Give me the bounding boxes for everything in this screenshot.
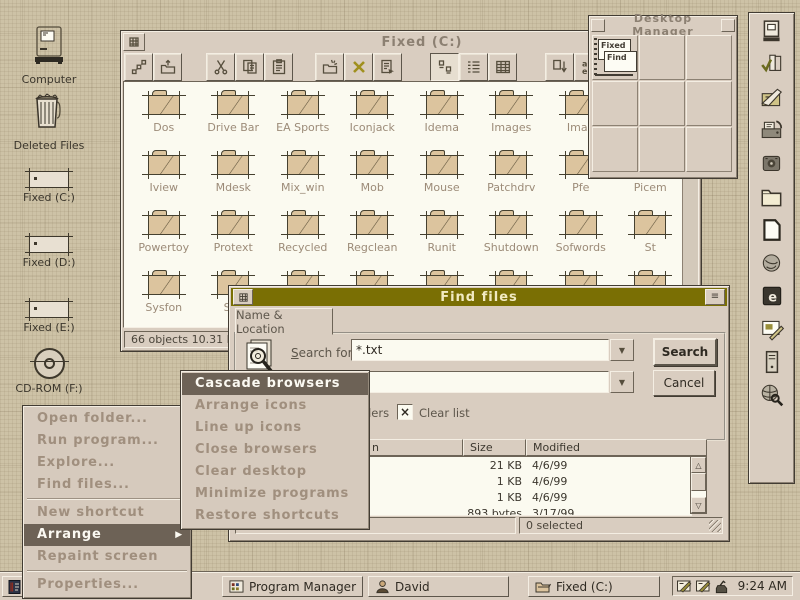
cancel-button-label: Cancel <box>664 376 705 390</box>
submenu-item-line-up-icons[interactable]: Line up icons <box>182 417 368 439</box>
properties-icon[interactable] <box>373 53 402 81</box>
look-in-input[interactable] <box>351 371 609 393</box>
search-button-label: Search <box>662 345 708 359</box>
folder-label: Drive Bar <box>199 121 269 134</box>
folder-label: Mix_win <box>268 181 338 194</box>
results-scrollbar[interactable]: △ ▽ <box>690 456 707 514</box>
tray-note-icon[interactable] <box>676 578 692 594</box>
folder-item[interactable]: Dos <box>129 88 199 148</box>
folder-label: Protext <box>199 241 269 254</box>
dropdown-arrow-icon: ▼ <box>619 346 625 355</box>
folder-label: Shutdown <box>477 241 547 254</box>
scrollbar-thumb[interactable] <box>691 473 706 491</box>
submenu-item-close-browsers[interactable]: Close browsers <box>182 439 368 461</box>
submenu-item-cascade-browsers[interactable]: Cascade browsers <box>182 373 368 395</box>
folder-label: Mouse <box>407 181 477 194</box>
desktop-icon-fixed-e[interactable]: Fixed (E:) <box>11 297 87 334</box>
folder-item[interactable]: Recycled <box>268 208 338 268</box>
folder-item[interactable]: Mob <box>338 148 408 208</box>
folder-icon <box>631 210 669 237</box>
folder-label: Regclean <box>338 241 408 254</box>
sidebar-shortcut-recorder[interactable] <box>758 151 786 177</box>
search-for-dropdown-button[interactable]: ▼ <box>610 339 634 361</box>
folder-label: Powertoy <box>129 241 199 254</box>
menu-item-new-shortcut[interactable]: New shortcut <box>24 502 190 524</box>
sidebar-shortcut-globe-sculpture[interactable] <box>758 250 786 276</box>
computer-icon <box>759 19 785 45</box>
folder-icon <box>353 150 391 177</box>
folder-icon <box>214 90 252 117</box>
column-header-fragment: n <box>372 441 379 454</box>
window-grid-icon <box>238 292 249 303</box>
folder-row: Powertoy Protext Recycled Regclean Runit… <box>129 208 698 268</box>
tab-label: Name & Location <box>236 308 332 336</box>
desktop-icon-label: Computer <box>11 73 87 86</box>
desktop-icon-label: Fixed (E:) <box>11 321 87 334</box>
trash-icon <box>27 92 71 132</box>
desktop-page-cell[interactable] <box>639 35 685 80</box>
folder-icon <box>492 210 530 237</box>
result-size: 21 KB <box>460 459 522 472</box>
folder-item[interactable]: Mix_win <box>268 148 338 208</box>
blank-page-icon <box>759 217 785 243</box>
lines-icon: ≡ <box>711 292 719 302</box>
sidebar-shortcut-e-floppy[interactable]: e <box>758 283 786 309</box>
desktop-page-cell[interactable]: Fixed Find <box>592 35 638 80</box>
clock[interactable]: 9:24 AM <box>738 579 789 593</box>
sort-by-type-icon[interactable] <box>545 53 574 81</box>
folder-icon <box>284 90 322 117</box>
desktop-icon-deleted-files[interactable]: Deleted Files <box>11 92 87 152</box>
menu-item-open-folder[interactable]: Open folder... <box>24 408 190 430</box>
drive-icon <box>29 301 69 318</box>
folder-item[interactable]: Regclean <box>338 208 408 268</box>
submenu-item-arrange-icons[interactable]: Arrange icons <box>182 395 368 417</box>
paste-icon[interactable] <box>264 53 293 81</box>
folder-label: Recycled <box>268 241 338 254</box>
checkmark-x-icon: × <box>400 406 410 418</box>
folder-label: Mob <box>338 181 408 194</box>
folder-label: Picem <box>616 181 686 194</box>
paint-picture-icon <box>759 316 785 342</box>
folder-label: Pfe <box>546 181 616 194</box>
accesskey: S <box>291 346 299 360</box>
task-button-fixed-c[interactable]: Fixed (C:) <box>528 576 660 597</box>
menu-item-repaint-screen[interactable]: Repaint screen <box>24 546 190 568</box>
folder-icon <box>145 270 183 297</box>
result-size: 893 bytes <box>460 507 522 517</box>
folder-label: Iview <box>129 181 199 194</box>
result-modified: 3/17/99 <box>522 507 574 517</box>
task-button-label: Fixed (C:) <box>556 580 613 594</box>
selected-text: 0 selected <box>526 519 583 532</box>
selected-status: 0 selected <box>519 517 723 534</box>
folder-label: Dos <box>129 121 199 134</box>
folder-icon <box>145 210 183 237</box>
menu-separator <box>27 570 187 572</box>
desktop-manager-window: Desktop Manager Fixed Find <box>588 15 738 179</box>
notepad-pencil-icon <box>759 85 785 111</box>
triangle-up-icon: △ <box>695 461 701 470</box>
desktop-icon-fixed-c[interactable]: Fixed (C:) <box>11 167 87 204</box>
shortcut-sidebar: e <box>748 12 795 484</box>
tower-pc-icon <box>759 349 785 375</box>
desktop-context-menu: Open folder... Run program... Explore...… <box>22 405 192 599</box>
folder-label: Sofwords <box>546 241 616 254</box>
menu-item-find-files[interactable]: Find files... <box>24 474 190 496</box>
menu-item-label: Arrange <box>37 527 102 542</box>
folder-item[interactable]: Protext <box>199 208 269 268</box>
submenu-item-restore-shortcuts[interactable]: Restore shortcuts <box>182 505 368 527</box>
desktop-page-cell[interactable] <box>639 127 685 172</box>
folder-icon <box>759 184 785 210</box>
folder-item[interactable]: Idema <box>407 88 477 148</box>
fax-icon <box>759 118 785 144</box>
submenu-item-clear-desktop[interactable]: Clear desktop <box>182 461 368 483</box>
program-manager-icon <box>229 579 244 594</box>
drive-icon <box>29 236 69 253</box>
result-size: 1 KB <box>460 475 522 488</box>
roll-up-button[interactable]: ≡ <box>705 289 725 305</box>
task-button-label: David <box>395 580 430 594</box>
folder-label: Iconjack <box>338 121 408 134</box>
desktop-icon-label: CD-ROM (F:) <box>11 382 87 395</box>
folder-item[interactable]: Mouse <box>407 148 477 208</box>
browser-status-text: 66 objects 10.31 M <box>131 333 236 346</box>
folder-label: Patchdrv <box>477 181 547 194</box>
folder-icon <box>145 150 183 177</box>
folder-icon <box>214 150 252 177</box>
label-rest: earch for: <box>299 346 357 360</box>
column-header-label: Modified <box>533 441 580 454</box>
cdrom-icon <box>34 348 65 379</box>
folder-label: Sysfon <box>129 301 199 314</box>
open-folder-icon <box>535 580 551 594</box>
folder-label: Mdesk <box>199 181 269 194</box>
find-titlebar[interactable]: Find files ≡ <box>231 288 727 306</box>
window-grid-icon <box>128 36 140 48</box>
menu-item-properties[interactable]: Properties... <box>24 574 190 596</box>
list-view-icon[interactable] <box>459 53 488 81</box>
folder-icon <box>145 90 183 117</box>
desktop-page-cell[interactable] <box>686 35 732 80</box>
desktop-page-cell[interactable] <box>592 127 638 172</box>
folder-item[interactable]: Sofwords <box>546 208 616 268</box>
column-header-label: Size <box>470 441 493 454</box>
menu-separator <box>27 498 187 500</box>
folder-icon <box>492 150 530 177</box>
folder-item[interactable]: Patchdrv <box>477 148 547 208</box>
delete-icon[interactable] <box>344 53 373 81</box>
desktop-page-cell[interactable] <box>592 81 638 126</box>
folder-icon <box>214 210 252 237</box>
sidebar-shortcut-organizer[interactable] <box>758 52 786 78</box>
cut-icon[interactable] <box>206 53 235 81</box>
search-for-label: Search for: <box>291 346 356 360</box>
start-icon <box>7 579 23 595</box>
shortcut-icon[interactable] <box>124 53 153 81</box>
search-for-input[interactable] <box>351 339 609 361</box>
sidebar-shortcut-blank-page[interactable] <box>758 217 786 243</box>
folder-icon <box>492 90 530 117</box>
folder-item[interactable]: Shutdown <box>477 208 547 268</box>
desktop-page-cell[interactable] <box>686 81 732 126</box>
folder-icon <box>353 90 391 117</box>
mini-taskbar-line <box>595 74 633 76</box>
result-modified: 4/6/99 <box>522 491 567 504</box>
look-in-dropdown-button[interactable]: ▼ <box>610 371 634 393</box>
desktop-manager-titlebar[interactable]: Desktop Manager <box>589 16 737 34</box>
user-icon <box>375 579 390 594</box>
clear-list-label: Clear list <box>419 406 470 420</box>
desktop-icon-fixed-d[interactable]: Fixed (D:) <box>11 232 87 269</box>
tray-inkwell-icon[interactable] <box>714 579 729 594</box>
column-header-size[interactable]: Size <box>463 439 526 456</box>
new-folder-icon[interactable] <box>315 53 344 81</box>
drive-icon <box>29 171 69 188</box>
system-tray: 9:24 AM <box>672 576 793 596</box>
folder-icon <box>284 150 322 177</box>
menu-item-arrange[interactable]: Arrange▶ <box>24 524 190 546</box>
desktop-icon-computer[interactable]: Computer <box>11 26 87 86</box>
computer-icon <box>27 26 71 66</box>
dropdown-arrow-icon: ▼ <box>619 378 625 387</box>
sidebar-shortcut-paint[interactable] <box>758 316 786 342</box>
folder-label: Images <box>477 121 547 134</box>
system-menu-button[interactable] <box>233 289 253 305</box>
task-button-program-manager[interactable]: Program Manager <box>222 576 363 597</box>
organizer-icon <box>759 52 785 78</box>
sidebar-shortcut-computer[interactable] <box>758 19 786 45</box>
scroll-up-button[interactable]: △ <box>691 457 706 473</box>
folder-label: Runit <box>407 241 477 254</box>
desktop-page-cell[interactable] <box>686 127 732 172</box>
scroll-down-button[interactable]: ▽ <box>691 497 706 513</box>
system-menu-button[interactable] <box>123 33 145 51</box>
folder-item[interactable]: EA Sports <box>268 88 338 148</box>
column-header-modified[interactable]: Modified <box>526 439 707 456</box>
svg-text:e: e <box>768 290 777 305</box>
menu-item-run-program[interactable]: Run program... <box>24 430 190 452</box>
sidebar-shortcut-folder[interactable] <box>758 184 786 210</box>
tray-note-icon[interactable] <box>695 578 711 594</box>
arrange-submenu: Cascade browsers Arrange icons Line up i… <box>180 370 370 530</box>
folder-item[interactable]: St <box>616 208 686 268</box>
desktop-icon-label: Deleted Files <box>11 139 87 152</box>
result-modified: 4/6/99 <box>522 459 567 472</box>
folder-item[interactable]: Iview <box>129 148 199 208</box>
folder-icon <box>423 150 461 177</box>
e-floppy-icon: e <box>759 283 785 309</box>
copy-icon[interactable] <box>235 53 264 81</box>
sidebar-shortcut-tower-pc[interactable] <box>758 349 786 375</box>
result-modified: 4/6/99 <box>522 475 567 488</box>
desktop-icon-label: Fixed (C:) <box>11 191 87 204</box>
tab-name-location[interactable]: Name & Location <box>235 308 333 335</box>
folder-icon <box>423 210 461 237</box>
sidebar-shortcut-notepad[interactable] <box>758 85 786 111</box>
search-button[interactable]: Search <box>653 338 717 366</box>
web-search-icon <box>759 382 785 408</box>
desktop-manager-grid: Fixed Find <box>592 35 732 172</box>
folder-icon <box>562 210 600 237</box>
mini-icon-strip <box>594 38 597 75</box>
desktop-icon-label: Fixed (D:) <box>11 256 87 269</box>
desktop-page-cell[interactable] <box>639 81 685 126</box>
resize-grip[interactable] <box>709 520 721 532</box>
folder-icon <box>423 90 461 117</box>
folder-label: Idema <box>407 121 477 134</box>
menu-item-explore[interactable]: Explore... <box>24 452 190 474</box>
desktop: { "desktop_icons": [ {"label": "Computer… <box>0 0 800 600</box>
folder-item[interactable]: Mdesk <box>199 148 269 208</box>
folder-item[interactable]: Runit <box>407 208 477 268</box>
window-title: Find files <box>253 290 705 305</box>
mini-window: Find <box>604 51 637 72</box>
result-size: 1 KB <box>460 491 522 504</box>
folder-item[interactable]: Drive Bar <box>199 88 269 148</box>
task-button-label: Program Manager <box>249 580 356 594</box>
cancel-button[interactable]: Cancel <box>653 370 715 396</box>
up-one-level-icon[interactable] <box>153 53 182 81</box>
svg-text:e: e <box>582 67 588 75</box>
recorder-icon <box>759 151 785 177</box>
folder-item[interactable]: Iconjack <box>338 88 408 148</box>
folder-label: EA Sports <box>268 121 338 134</box>
folder-icon <box>353 210 391 237</box>
system-menu-button[interactable] <box>591 19 605 32</box>
details-view-icon[interactable] <box>488 53 517 81</box>
large-icons-view-icon[interactable] <box>430 53 459 81</box>
folder-label: St <box>616 241 686 254</box>
folder-icon <box>284 210 322 237</box>
sidebar-shortcut-fax[interactable] <box>758 118 786 144</box>
folder-item[interactable]: Powertoy <box>129 208 199 268</box>
sidebar-shortcut-web-search[interactable] <box>758 382 786 408</box>
minimize-button[interactable] <box>721 19 735 32</box>
clear-list-checkbox[interactable]: × <box>397 404 413 420</box>
desktop-icon-cdrom[interactable]: CD-ROM (F:) <box>11 346 87 395</box>
task-button-david[interactable]: David <box>368 576 509 597</box>
folder-item[interactable]: Sysfon <box>129 268 199 328</box>
triangle-down-icon: ▽ <box>695 501 701 510</box>
submenu-item-minimize-programs[interactable]: Minimize programs <box>182 483 368 505</box>
globe-sculpture-icon <box>759 250 785 276</box>
folder-item[interactable]: Images <box>477 88 547 148</box>
